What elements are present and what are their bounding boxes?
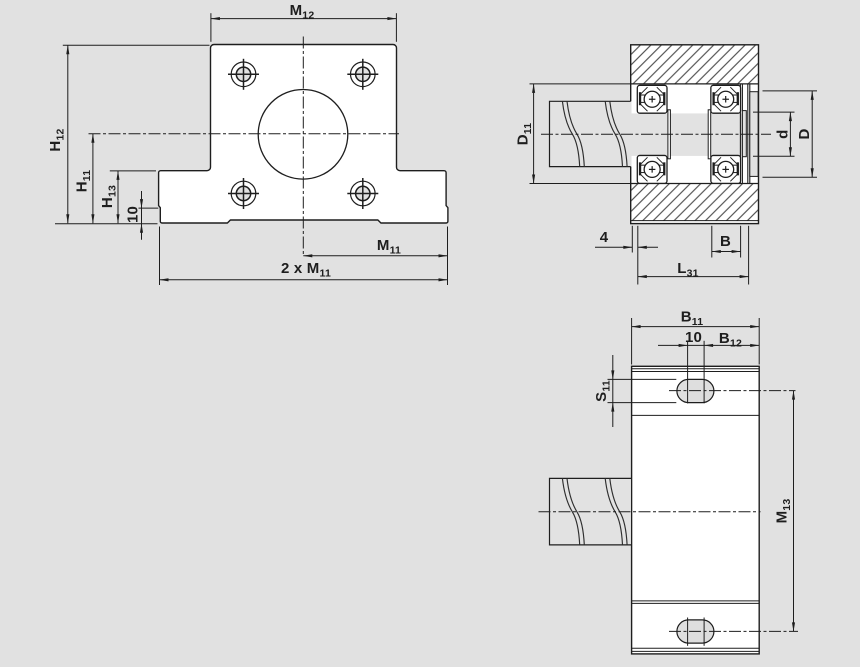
svg-text:d: d (775, 130, 792, 139)
svg-text:B: B (720, 233, 731, 250)
svg-text:10: 10 (685, 329, 702, 346)
svg-text:4: 4 (600, 229, 609, 246)
svg-text:10: 10 (125, 206, 142, 223)
svg-text:D: D (796, 128, 813, 139)
